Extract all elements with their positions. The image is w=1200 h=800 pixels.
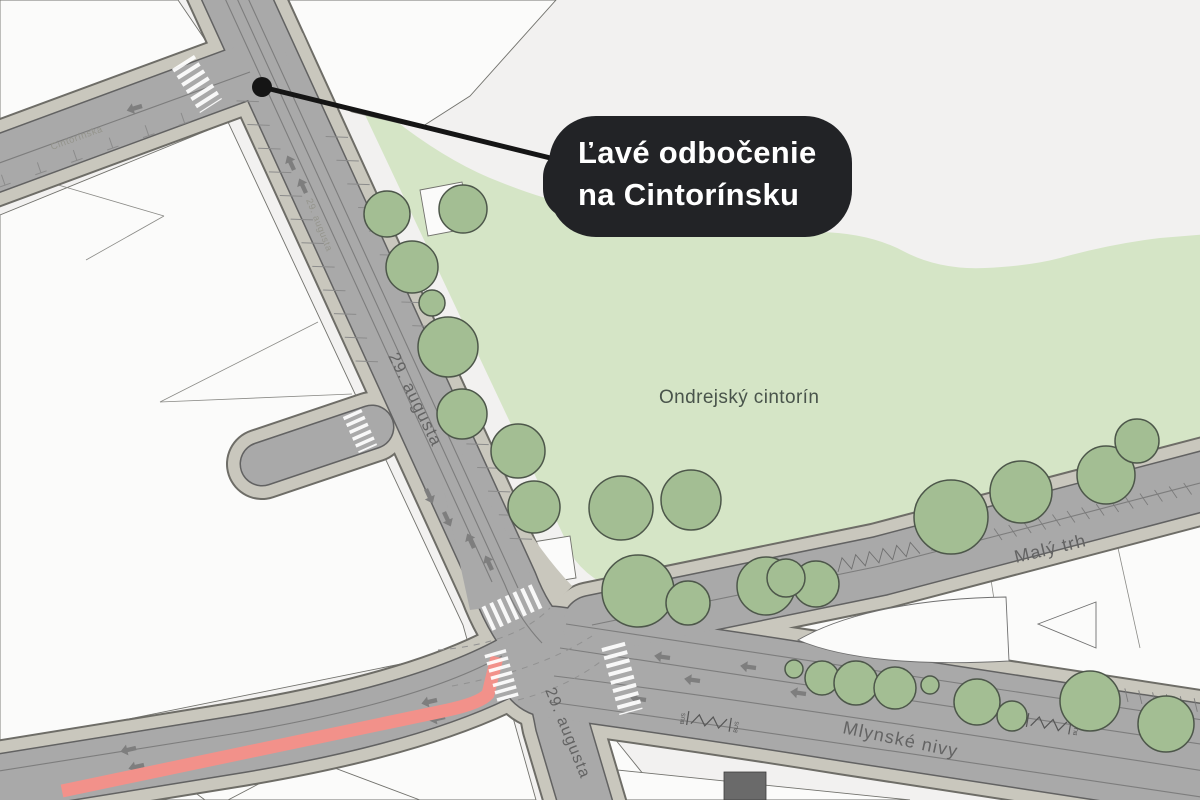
map-stage: BUS BUS BUS BUS	[0, 0, 1200, 800]
callout-junction-dot	[252, 77, 272, 97]
park-label: Ondrejský cintorín	[659, 387, 819, 408]
map-canvas: BUS BUS BUS BUS	[0, 0, 1200, 800]
callout-text-line2: na Cintorínsku	[578, 177, 799, 212]
dark-building	[724, 772, 766, 800]
callout-text-line1: Ľavé odbočenie	[578, 135, 817, 170]
